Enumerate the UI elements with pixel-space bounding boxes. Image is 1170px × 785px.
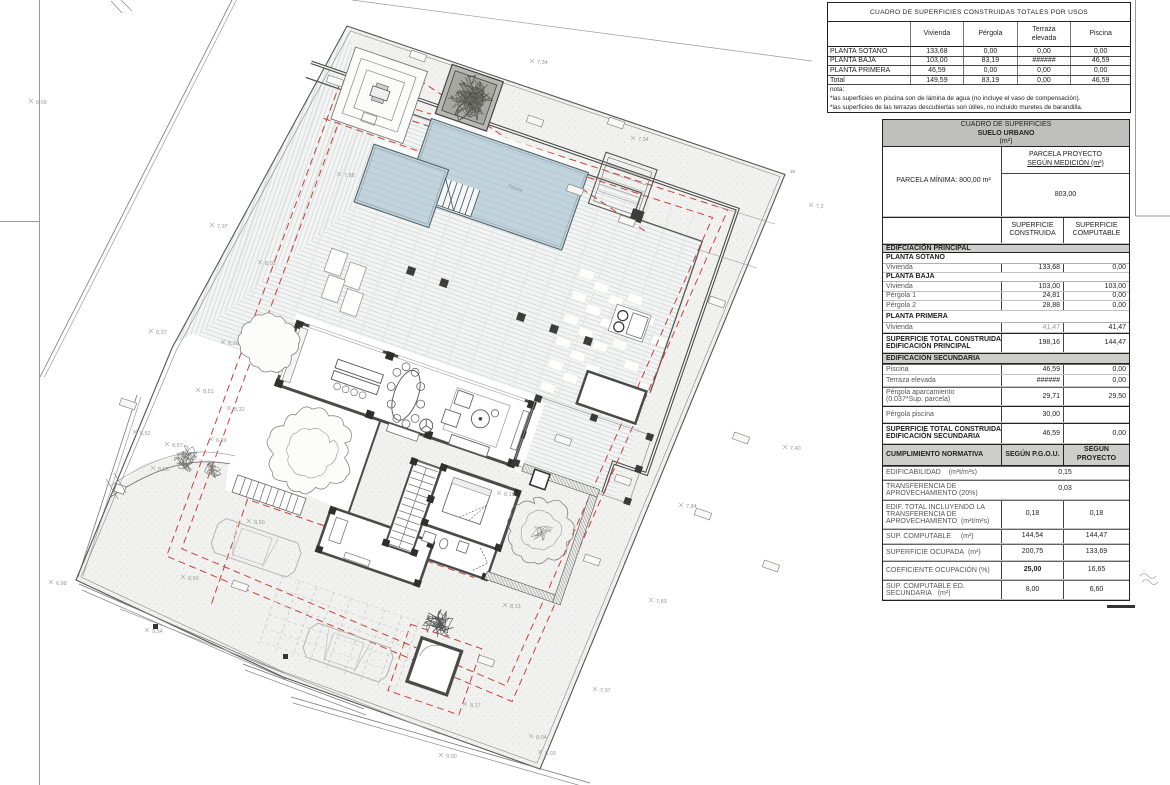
svg-text:8,17: 8,17 bbox=[470, 703, 481, 709]
svg-text:7,88: 7,88 bbox=[344, 173, 355, 179]
svg-text:8,50: 8,50 bbox=[254, 520, 265, 526]
svg-text:7,97: 7,97 bbox=[600, 688, 611, 694]
svg-text:7,34: 7,34 bbox=[638, 137, 649, 143]
svg-text:8,52: 8,52 bbox=[140, 431, 151, 437]
svg-text:7,2: 7,2 bbox=[816, 204, 824, 210]
svg-text:7,40: 7,40 bbox=[790, 446, 801, 452]
svg-text:7,84: 7,84 bbox=[686, 504, 697, 510]
svg-text:39: 39 bbox=[790, 169, 796, 174]
svg-text:8,55: 8,55 bbox=[158, 467, 169, 473]
svg-text:8,19: 8,19 bbox=[504, 492, 515, 498]
svg-text:8,26: 8,26 bbox=[228, 341, 239, 347]
svg-text:7,34: 7,34 bbox=[537, 60, 548, 66]
svg-text:8,13: 8,13 bbox=[510, 604, 521, 610]
svg-text:6,39: 6,39 bbox=[216, 438, 227, 444]
svg-text:8,51: 8,51 bbox=[203, 389, 214, 395]
svg-text:8,03: 8,03 bbox=[265, 261, 276, 267]
svg-text:7,97: 7,97 bbox=[217, 224, 228, 230]
svg-text:8,32: 8,32 bbox=[234, 407, 245, 413]
svg-text:8,60: 8,60 bbox=[188, 576, 199, 582]
svg-text:8,57: 8,57 bbox=[172, 443, 183, 449]
svg-text:6,98: 6,98 bbox=[56, 581, 67, 587]
svg-text:7,83: 7,83 bbox=[656, 599, 667, 605]
svg-text:8,09: 8,09 bbox=[36, 100, 47, 106]
svg-text:8,04: 8,04 bbox=[536, 735, 547, 741]
svg-text:9,00: 9,00 bbox=[446, 754, 457, 760]
svg-text:9,54: 9,54 bbox=[152, 629, 163, 635]
svg-text:8,03: 8,03 bbox=[545, 751, 556, 757]
svg-text:8,37: 8,37 bbox=[156, 330, 167, 336]
